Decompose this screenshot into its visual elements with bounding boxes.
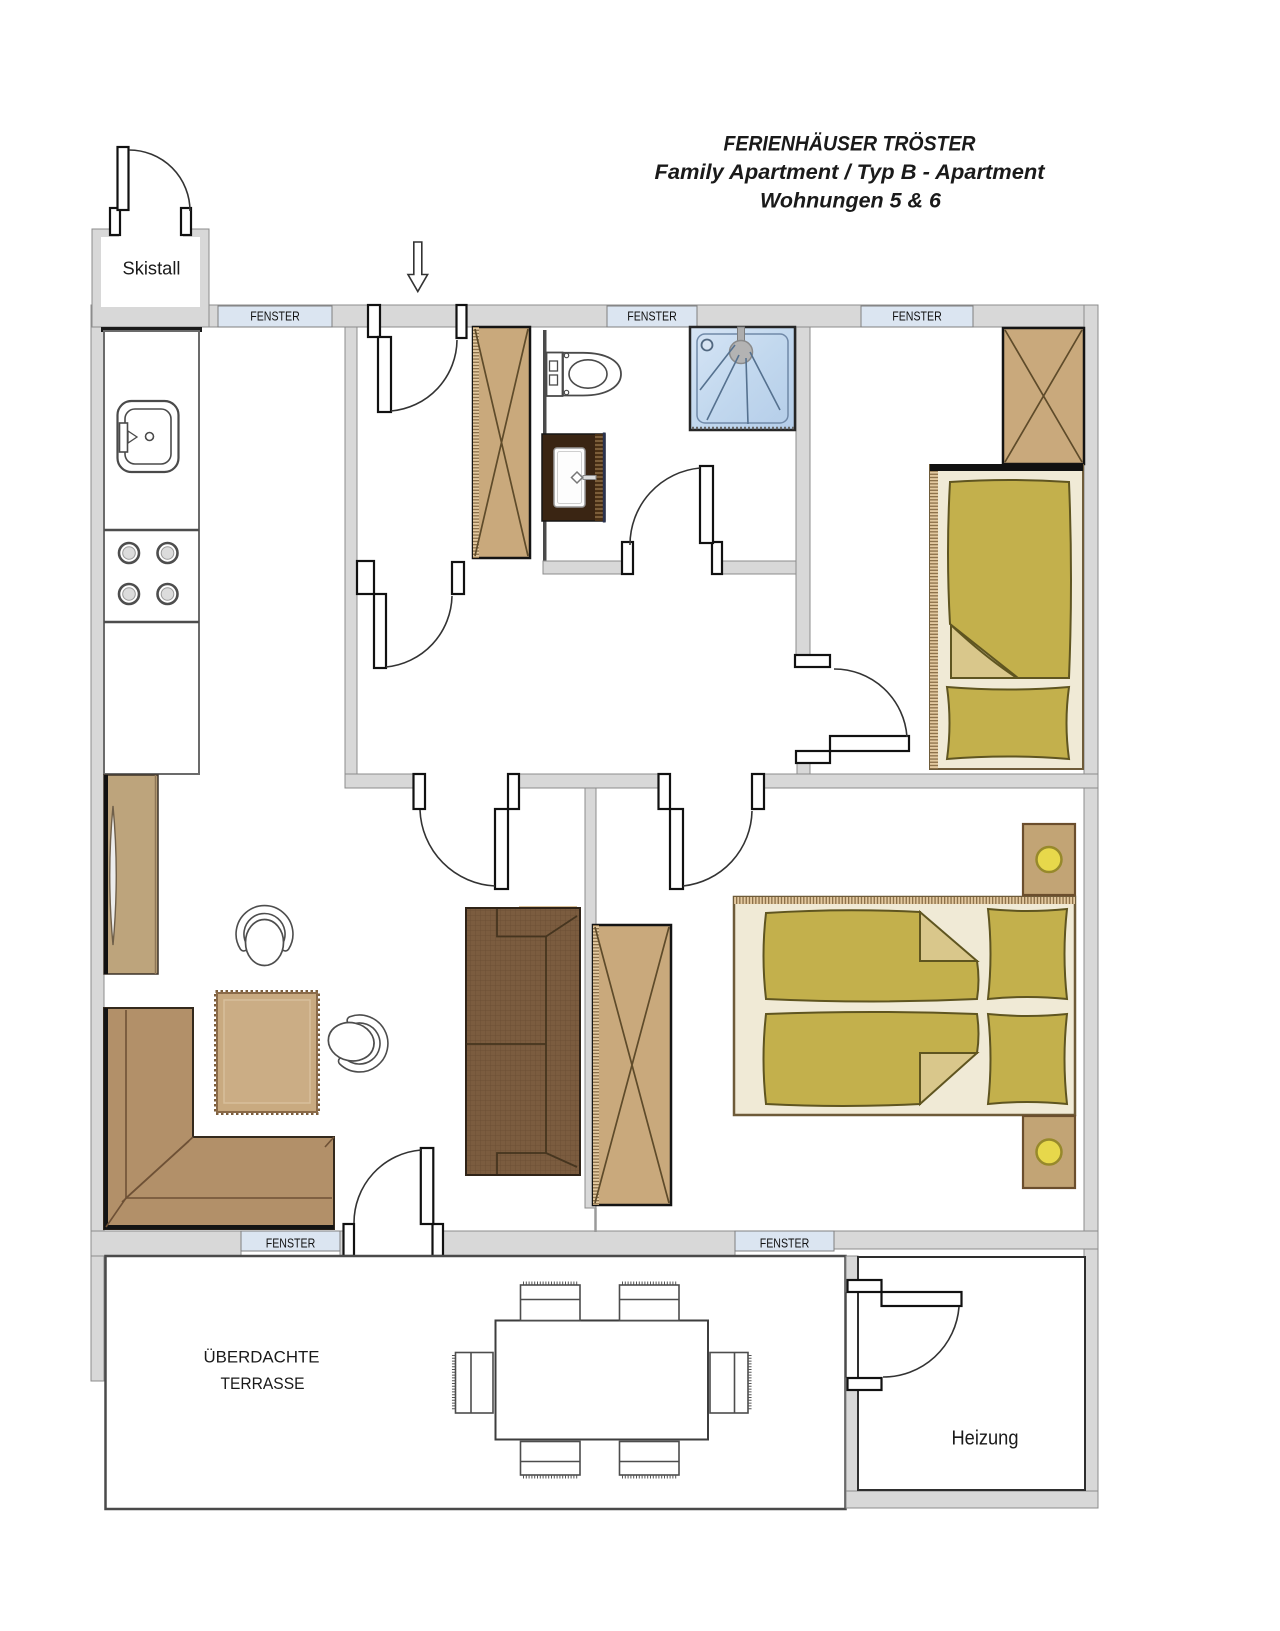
svg-text:TERRASSE: TERRASSE: [221, 1374, 305, 1393]
svg-text:FERIENHÄUSER TRÖSTER: FERIENHÄUSER TRÖSTER: [724, 133, 977, 156]
svg-text:FENSTER: FENSTER: [627, 309, 677, 324]
svg-text:Family Apartment / Typ B - Apa: Family Apartment / Typ B - Apartment: [655, 161, 1046, 184]
svg-text:FENSTER: FENSTER: [760, 1236, 810, 1251]
svg-text:ÜBERDACHTE: ÜBERDACHTE: [204, 1348, 320, 1367]
svg-text:Skistall: Skistall: [123, 258, 181, 279]
svg-text:FENSTER: FENSTER: [266, 1236, 316, 1251]
svg-text:FENSTER: FENSTER: [892, 309, 942, 324]
svg-text:FENSTER: FENSTER: [250, 309, 300, 324]
svg-text:Heizung: Heizung: [952, 1428, 1019, 1450]
svg-text:Wohnungen 5 & 6: Wohnungen 5 & 6: [760, 190, 941, 213]
